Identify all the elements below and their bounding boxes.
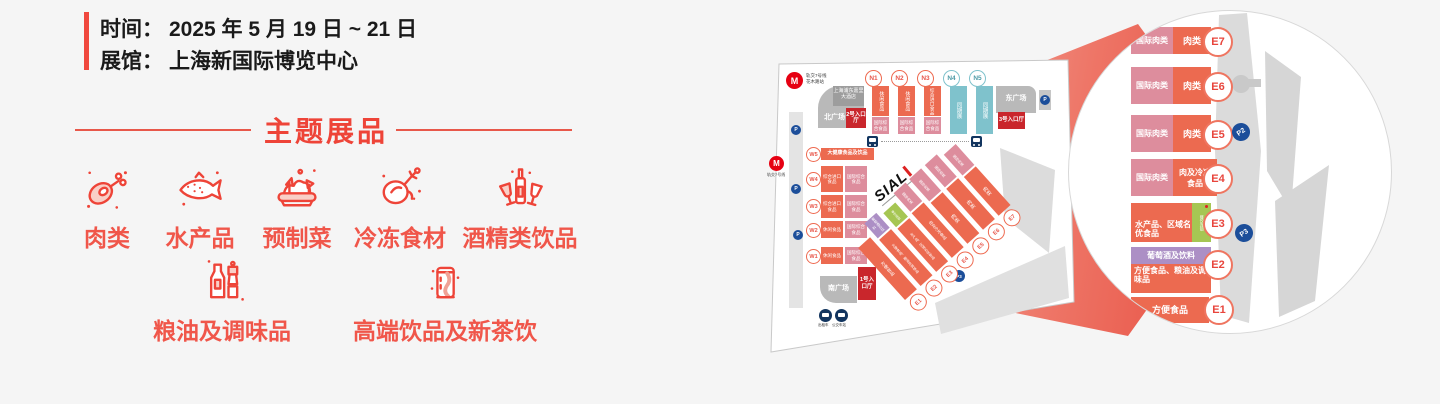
mag-circle-e1: E1 bbox=[1204, 295, 1234, 325]
parking-icon: P bbox=[793, 230, 803, 240]
mag-circle-e2: E2 bbox=[1203, 250, 1233, 280]
entrance-hall-1: 1号入口厅 bbox=[858, 267, 876, 300]
hall-e1: 方便食品 E1 bbox=[905, 289, 917, 300]
mag-e2-main: 方便食品、粮油及调味品 bbox=[1131, 264, 1211, 293]
entrance-hall-3: 3号入口厅 bbox=[998, 112, 1025, 129]
hall-circle-w5: W5 bbox=[806, 147, 821, 162]
expo-banner: 时间：2025 年 5 月 19 日 ~ 21 日 展馆：上海新国际博览中心 主… bbox=[0, 0, 1440, 404]
category-label: 粮油及调味品 bbox=[122, 312, 322, 346]
venue-value: 上海新国际博览中心 bbox=[169, 50, 358, 73]
mag-circle-e6: E6 bbox=[1203, 72, 1233, 102]
hall-n1-sub: 国际综合食品 bbox=[872, 117, 889, 134]
hall-n5: 同期展 bbox=[976, 86, 993, 134]
hall-circle-w4: W4 bbox=[806, 172, 821, 187]
shuttle-icon bbox=[867, 136, 878, 147]
venue-label: 展馆： bbox=[100, 50, 163, 73]
magnifier-circle: 国际肉类 肉类 E7 国际肉类 肉类 E6 国际肉类 肉类 E5 国际肉类 肉及… bbox=[1068, 10, 1392, 334]
floor-plan-map: M 轨交7号线 花木路站 北广场 上海浦东嘉里大酒店 2号入口厅 N1 N2 N… bbox=[765, 48, 1085, 360]
time-line: 时间：2025 年 5 月 19 日 ~ 21 日 bbox=[100, 13, 417, 43]
category-label: 高端饮品及新茶饮 bbox=[345, 312, 545, 346]
parking-icon: P bbox=[791, 184, 801, 194]
hall-n1: 休闲食品 bbox=[872, 86, 889, 116]
mag-e6-left: 国际肉类 bbox=[1131, 67, 1173, 104]
hall-e4: 国际肉类 肉及冷冻食品 E4 bbox=[952, 247, 964, 258]
hall-circle-w3: W3 bbox=[806, 199, 821, 214]
venue-line: 展馆：上海新国际博览中心 bbox=[100, 45, 358, 75]
metro-left-label: 轨交7号线 bbox=[767, 172, 785, 178]
hall-circle-n2: N2 bbox=[891, 70, 908, 87]
mag-e2-top: 葡萄酒及饮料 bbox=[1131, 247, 1211, 264]
mag-e1-main: 方便食品 bbox=[1131, 297, 1209, 323]
taxi-label: 出租车 bbox=[818, 323, 829, 328]
hall-w1: 休闲食品 bbox=[821, 247, 843, 264]
hotel-block: 上海浦东嘉里大酒店 bbox=[833, 86, 864, 106]
hall-circle-w2: W2 bbox=[806, 223, 821, 238]
hall-circle-w1: W1 bbox=[806, 249, 821, 264]
category-label: 酒精类饮品 bbox=[420, 219, 620, 253]
mag-e3-main: 水产品、区域名优食品 bbox=[1131, 203, 1192, 242]
metro-top-label: 轨交7号线 花木路站 bbox=[806, 73, 827, 85]
taxi-icon bbox=[819, 309, 832, 322]
category-beverage: 高端饮品及新茶饮 bbox=[345, 256, 545, 346]
hall-circle-n3: N3 bbox=[917, 70, 934, 87]
hall-circle-n4: N4 bbox=[943, 70, 960, 87]
hall-e7: 国际肉类 肉类 E7 bbox=[999, 205, 1011, 216]
hall-e6: 国际肉类 肉类 E6 bbox=[983, 219, 995, 230]
mag-e7-left: 国际肉类 bbox=[1131, 27, 1173, 54]
wine-icon bbox=[420, 163, 620, 215]
title-line-left bbox=[75, 129, 251, 131]
hall-e5: 国际肉类 肉类 E5 bbox=[967, 233, 979, 244]
asterisk-dot bbox=[1205, 205, 1208, 208]
mag-e4-left: 国际肉类 bbox=[1131, 159, 1173, 196]
entrance-hall-2: 2号入口厅 bbox=[846, 108, 866, 128]
hall-circle-n5: N5 bbox=[969, 70, 986, 87]
hall-w4: 综合进口食品 bbox=[821, 166, 843, 192]
mag-circle-e3: E3 bbox=[1203, 209, 1233, 239]
mag-e5-left: 国际肉类 bbox=[1131, 115, 1173, 152]
metro-icon: M bbox=[769, 156, 784, 171]
mag-circle-e4: E4 bbox=[1203, 164, 1233, 194]
section-title: 主题展品 bbox=[264, 110, 388, 150]
metro-icon: M bbox=[786, 72, 803, 89]
category-alcohol: 酒精类饮品 bbox=[420, 163, 620, 253]
title-line-right bbox=[396, 129, 572, 131]
hall-circle-n1: N1 bbox=[865, 70, 882, 87]
bus-label: 公交车站 bbox=[832, 323, 846, 328]
accent-bar bbox=[84, 12, 89, 70]
parking-icon: P bbox=[1040, 95, 1050, 105]
hall-w5: 大健康食品及饮品 bbox=[821, 148, 874, 160]
south-square: 南广场 bbox=[820, 276, 857, 303]
mag-circle-e5: E5 bbox=[1203, 120, 1233, 150]
hall-e2: 葡萄酒及饮料 方便食品、粮油及调味品 E2 bbox=[921, 275, 933, 286]
drink-can-icon bbox=[345, 256, 545, 308]
mag-circle-e7: E7 bbox=[1203, 27, 1233, 57]
parking-icon: P bbox=[791, 125, 801, 135]
condiment-icon bbox=[122, 256, 322, 308]
hall-e3: 餐饮连锁 水产品、区域名优食品 E3 bbox=[936, 261, 948, 272]
category-grain-oil: 粮油及调味品 bbox=[122, 256, 322, 346]
bus-icon bbox=[835, 309, 848, 322]
hall-n2: 休闲食品 bbox=[898, 86, 915, 116]
time-value: 2025 年 5 月 19 日 ~ 21 日 bbox=[169, 18, 417, 41]
time-label: 时间： bbox=[100, 18, 163, 41]
east-square: 东广场 bbox=[996, 86, 1036, 113]
